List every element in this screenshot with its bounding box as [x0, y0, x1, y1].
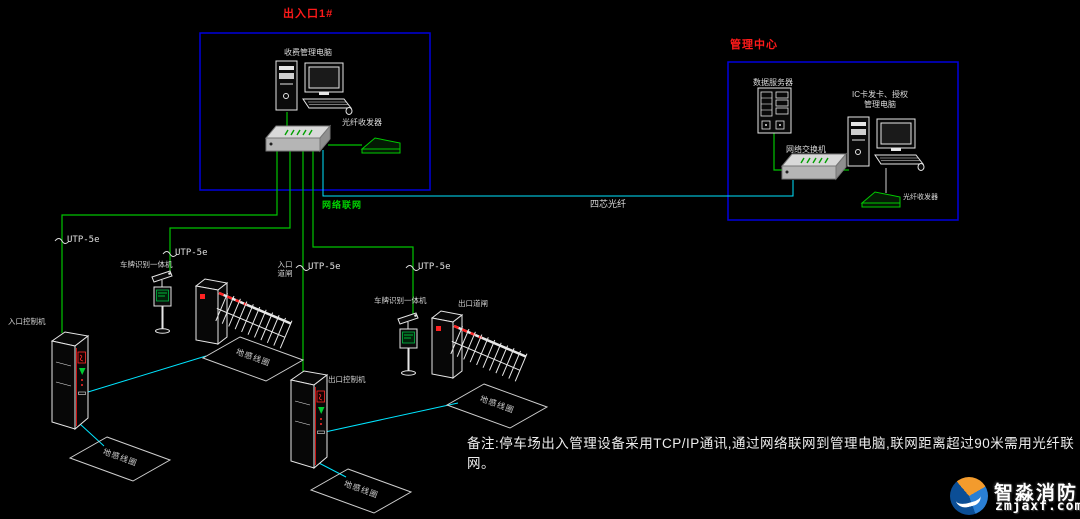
camera2-label: 车牌识别一体机: [374, 296, 427, 305]
exit-kiosk-label: 出口控制机: [328, 375, 366, 384]
plate-camera-1-icon: [152, 271, 172, 333]
entrance-kiosk-icon: [52, 332, 88, 429]
ic-card-pc-label-line1: IC卡发卡、授权: [838, 90, 922, 100]
data-server-icon: [758, 88, 791, 133]
entrance-barrier-label-line1: 入口: [272, 260, 298, 269]
ic-card-pc-label-line2: 管理电脑: [838, 100, 922, 110]
entrance-barrier-label: 入口 道闸: [272, 260, 298, 278]
fee-pc-icon: [276, 61, 352, 115]
parking-system-diagram: 出入口1# 管理中心 收费管理电脑 光纤收发器 数据服务器 IC卡发卡、授权 管…: [0, 0, 1080, 519]
network-link-label: 网络联网: [322, 200, 362, 211]
entrance-transceiver-label: 光纤收发器: [342, 118, 382, 128]
management-zone-title: 管理中心: [730, 39, 778, 52]
data-server-label: 数据服务器: [753, 78, 793, 88]
entrance-fiber-transceiver-icon: [362, 138, 400, 153]
utp-label-2: UTP-5e: [175, 248, 208, 259]
entrance-barrier-label-line2: 道闸: [272, 269, 298, 278]
management-transceiver-label: 光纤收发器: [903, 194, 938, 202]
fiber-cable-label: 四芯光纤: [590, 199, 626, 210]
plate-camera-2-icon: [398, 313, 418, 375]
camera1-label: 车牌识别一体机: [120, 260, 173, 269]
fee-pc-label: 收费管理电脑: [284, 48, 332, 58]
entrance-switch-icon: [266, 126, 330, 151]
management-fiber-transceiver-icon: [862, 192, 900, 207]
ic-card-pc-icon: [848, 117, 924, 171]
exit-barrier-gate-icon: [432, 311, 527, 381]
fiber-and-loop-lines: [80, 150, 793, 477]
entrance-zone-title: 出入口1#: [283, 8, 333, 21]
brand-logo-url: zmjaxf.com: [995, 499, 1080, 514]
management-switch-label: 网络交换机: [786, 145, 826, 155]
utp-label-3: UTP-5e: [308, 262, 341, 273]
utp-label-4: UTP-5e: [418, 262, 451, 273]
ic-card-pc-label: IC卡发卡、授权 管理电脑: [838, 90, 922, 109]
brand-logo-icon: [950, 477, 988, 515]
utp-label-1: UTP-5e: [67, 235, 100, 246]
management-switch-icon: [782, 154, 846, 179]
cable-break-marks: [55, 239, 420, 271]
exit-barrier-label: 出口道闸: [458, 299, 488, 308]
exit-kiosk-icon: [291, 371, 327, 468]
remark-note: 备注:停车场出入管理设备采用TCP/IP通讯,通过网络联网到管理电脑,联网距离超…: [467, 432, 1080, 472]
entrance-kiosk-label: 入口控制机: [8, 317, 46, 326]
